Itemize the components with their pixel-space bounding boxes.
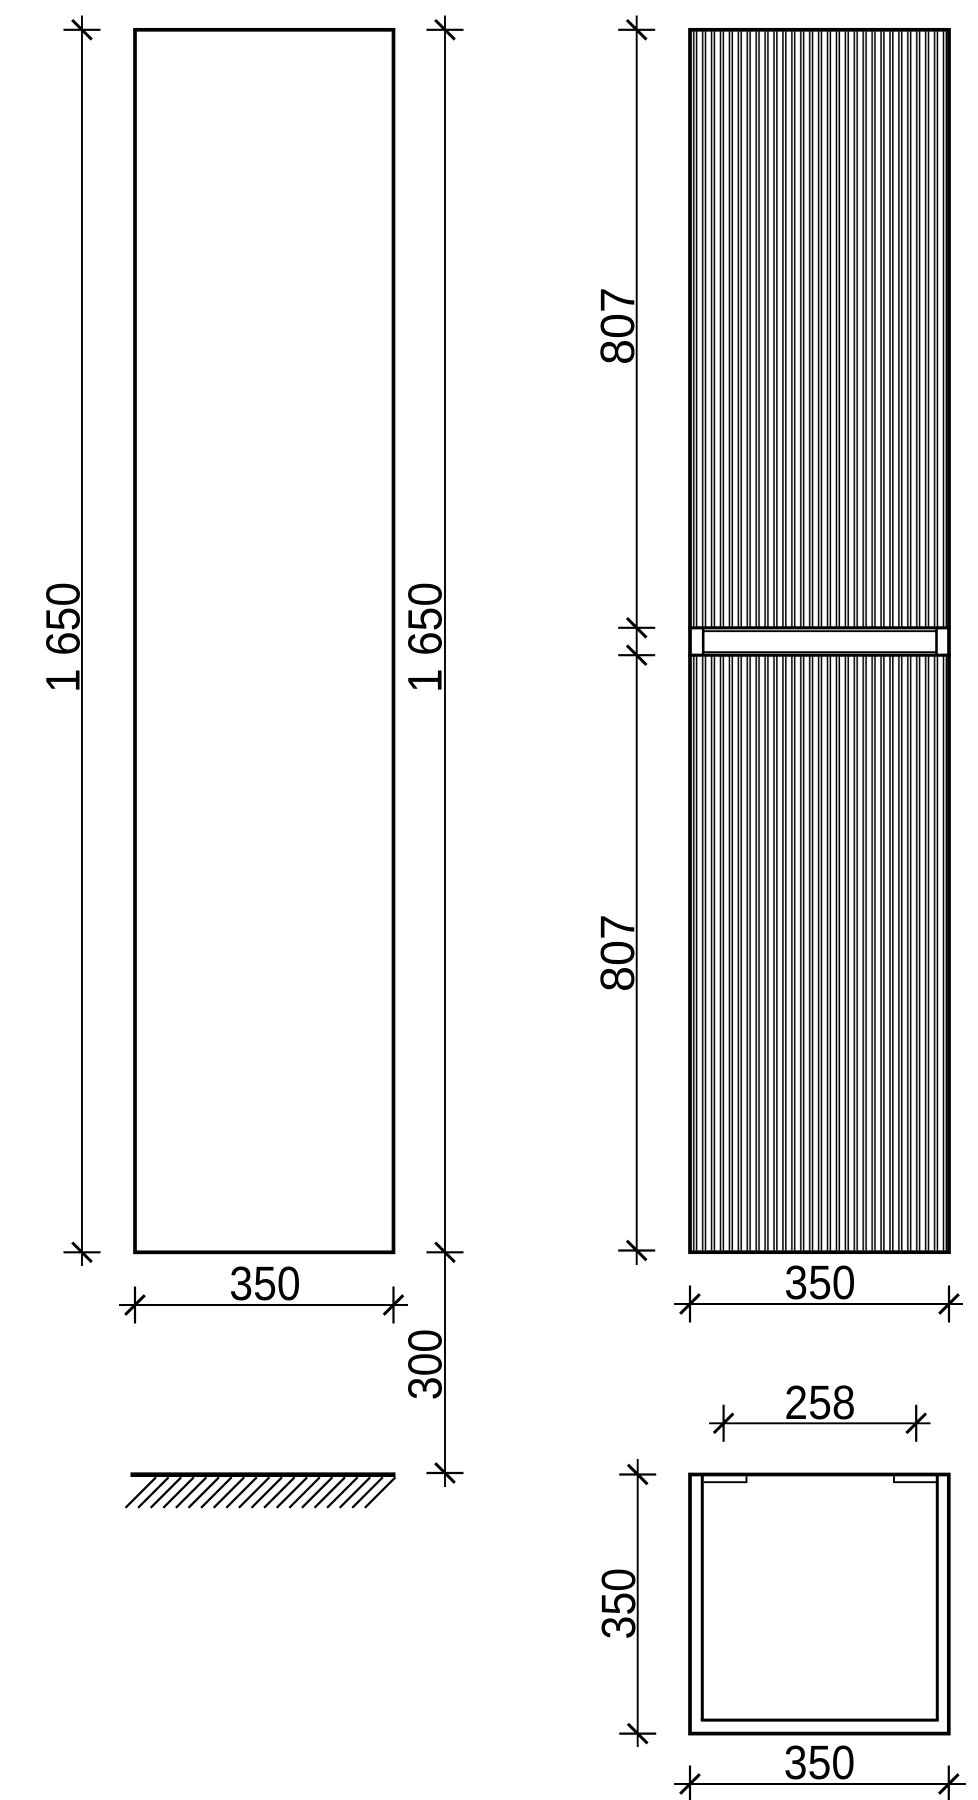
svg-text:300: 300 (399, 1329, 453, 1401)
svg-text:350: 350 (229, 1257, 301, 1311)
svg-text:807: 807 (591, 914, 645, 992)
svg-text:350: 350 (784, 1256, 856, 1310)
svg-text:350: 350 (592, 1568, 646, 1640)
svg-text:258: 258 (784, 1376, 856, 1430)
svg-text:807: 807 (591, 287, 645, 365)
svg-text:350: 350 (784, 1736, 856, 1790)
svg-text:1 650: 1 650 (399, 582, 453, 693)
svg-text:1 650: 1 650 (37, 582, 91, 693)
